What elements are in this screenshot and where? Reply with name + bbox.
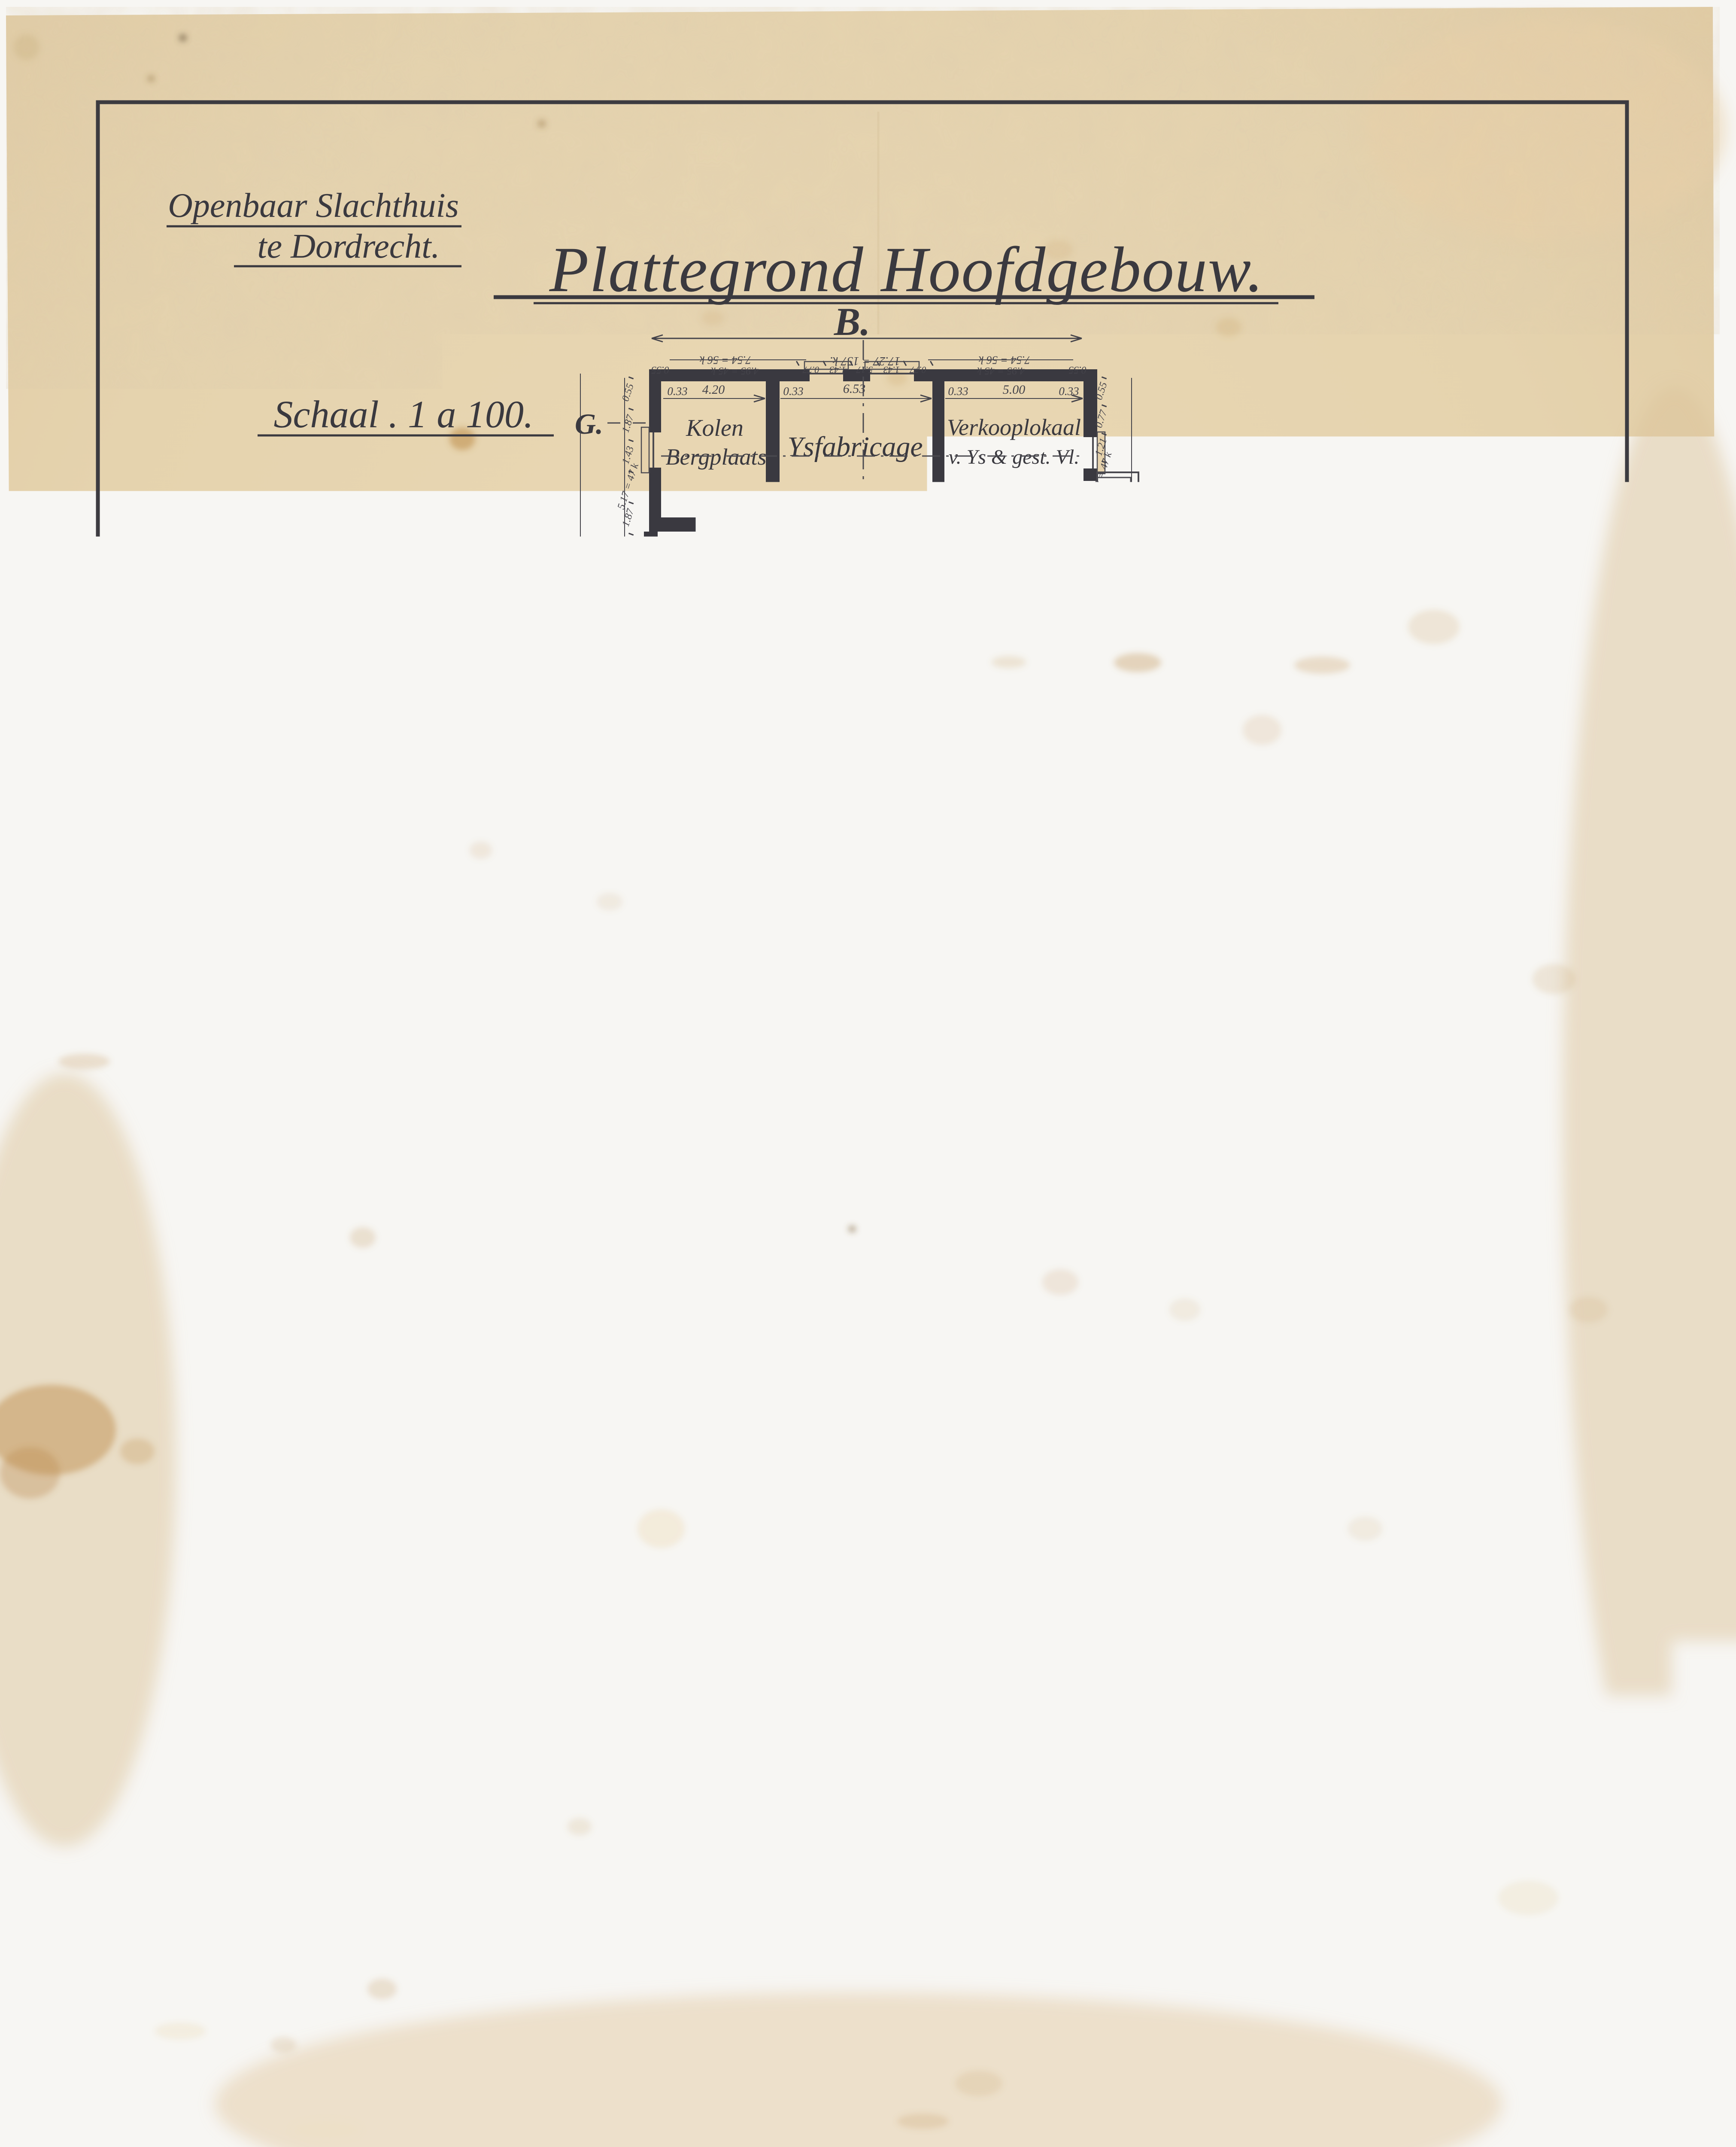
svg-text:v. Ys & gest. Vl.: v. Ys & gest. Vl. <box>949 446 1079 468</box>
svg-text:4.51 = 41 k.: 4.51 = 41 k. <box>552 1939 603 1950</box>
svg-text:Openbaar Slachthuis: Openbaar Slachthuis <box>168 187 459 225</box>
svg-text:Waschkamer.: Waschkamer. <box>1121 873 1143 974</box>
svg-text:4.57 = 41 k: 4.57 = 41 k <box>548 1015 594 1025</box>
svg-text:1.98: 1.98 <box>476 1925 493 1935</box>
svg-text:19.25 = 175 k.: 19.25 = 175 k. <box>1110 609 1123 679</box>
svg-text:0.33: 0.33 <box>668 972 688 985</box>
svg-text:Verbindings gang.: Verbindings gang. <box>734 1092 978 1130</box>
svg-text:5.00: 5.00 <box>1003 383 1026 397</box>
svg-text:1.43: 1.43 <box>829 365 846 375</box>
svg-text:0.55: 0.55 <box>432 1028 448 1038</box>
svg-text:1.54: 1.54 <box>350 1028 366 1038</box>
svg-text:0.22: 0.22 <box>1142 1025 1160 1037</box>
svg-text:1.43: 1.43 <box>863 1884 880 1895</box>
svg-text:4.20: 4.20 <box>702 383 725 397</box>
svg-text:G.: G. <box>844 1925 880 1967</box>
svg-text:Bergplaats: Bergplaats <box>666 444 767 470</box>
svg-text:0.07: 0.07 <box>1026 1532 1043 1543</box>
svg-text:0.66: 0.66 <box>1153 834 1170 845</box>
svg-text:0.77: 0.77 <box>802 365 819 375</box>
svg-text:1.65: 1.65 <box>827 1884 844 1895</box>
svg-text:1.98: 1.98 <box>486 1028 502 1038</box>
svg-text:Ysfabricage: Ysfabricage <box>787 431 923 462</box>
svg-text:4.51 = 41 k.: 4.51 = 41 k. <box>364 1939 414 1950</box>
svg-text:Koelhuis.: Koelhuis. <box>808 1603 913 1633</box>
svg-text:0.33: 0.33 <box>1393 1510 1413 1523</box>
svg-text:4.57 = 41 k: 4.57 = 41 k <box>372 1015 418 1025</box>
svg-text:13.20: 13.20 <box>459 1516 490 1532</box>
svg-text:14.08 . 128 k.: 14.08 . 128 k. <box>1223 1956 1288 1970</box>
svg-text:1.98: 1.98 <box>1247 1925 1264 1935</box>
svg-text:34.65 = 315 k: 34.65 = 315 k <box>241 1432 255 1505</box>
svg-text:H.: H. <box>1124 554 1159 592</box>
svg-text:1.87: 1.87 <box>753 1884 771 1895</box>
svg-text:0.55: 0.55 <box>651 364 669 375</box>
svg-text:0.33: 0.33 <box>667 385 687 398</box>
svg-text:0.11: 0.11 <box>661 1911 674 1919</box>
svg-text:0.07: 0.07 <box>699 1521 716 1532</box>
svg-text:0.33: 0.33 <box>317 1509 337 1522</box>
svg-text:43.45: 43.45 <box>872 1126 901 1140</box>
svg-text:Slachthal Groot en Klein Vee.: Slachthal Groot en Klein Vee. <box>1211 1330 1248 1727</box>
svg-text:Kolen: Kolen <box>686 415 744 441</box>
svg-text:0.33: 0.33 <box>948 385 968 398</box>
svg-text:1.43: 1.43 <box>633 1925 650 1935</box>
svg-text:0.55: 0.55 <box>323 1028 339 1038</box>
svg-text:2.06 . 26 k: 2.06 . 26 k <box>1236 1937 1280 1949</box>
svg-text:0.55: 0.55 <box>1185 834 1202 845</box>
svg-text:4.95 = 45 k: 4.95 = 45 k <box>1337 1012 1384 1023</box>
svg-text:0.55: 0.55 <box>1395 1028 1411 1038</box>
svg-text:1.43: 1.43 <box>595 1028 611 1038</box>
svg-text:4.07 = 37 k: 4.07 = 37 k <box>1223 822 1267 833</box>
svg-text:0.55: 0.55 <box>790 1884 807 1895</box>
svg-text:34.65 = 315 k: 34.65 = 315 k <box>1467 1432 1481 1505</box>
svg-text:0.11: 0.11 <box>1026 1521 1042 1532</box>
svg-text:5.00: 5.00 <box>745 1101 759 1122</box>
svg-text:0.33: 0.33 <box>1166 983 1177 1001</box>
svg-text:G.: G. <box>575 408 603 440</box>
svg-text:9.16: 9.16 <box>945 662 969 677</box>
svg-text:1.43: 1.43 <box>1402 1925 1419 1935</box>
svg-text:0.22: 0.22 <box>963 1026 980 1037</box>
svg-text:4.73 . 43 k: 4.73 . 43 k <box>848 1898 895 1911</box>
svg-text:0.22: 0.22 <box>1175 873 1186 891</box>
svg-text:1.43: 1.43 <box>319 1925 335 1935</box>
svg-text:4.95 = 45 k: 4.95 = 45 k <box>711 365 759 376</box>
svg-text:0.55: 0.55 <box>1068 364 1087 375</box>
svg-text:Schoorsteen.: Schoorsteen. <box>153 734 272 760</box>
svg-text:1.54: 1.54 <box>404 1028 420 1038</box>
svg-text:13.20: 13.20 <box>1265 1514 1296 1530</box>
svg-text:0.33: 0.33 <box>667 656 687 669</box>
svg-text:Voorkoelhuis.: Voorkoelhuis. <box>803 1286 953 1317</box>
svg-text:0.44: 0.44 <box>459 1028 475 1038</box>
svg-text:6.53: 6.53 <box>843 382 866 396</box>
svg-text:15.67: 15.67 <box>859 1502 893 1518</box>
svg-text:C.: C. <box>240 1545 264 1574</box>
svg-text:2C: 2C <box>1171 480 1203 509</box>
svg-text:0.44: 0.44 <box>513 1028 529 1038</box>
svg-text:0.33: 0.33 <box>958 983 978 995</box>
svg-text:1.43: 1.43 <box>1170 1925 1187 1935</box>
svg-text:25.11: 25.11 <box>573 896 587 924</box>
svg-text:1.43: 1.43 <box>1249 834 1266 845</box>
svg-text:Kleedkamer.: Kleedkamer. <box>1172 933 1296 961</box>
svg-text:0.33: 0.33 <box>1059 385 1079 398</box>
svg-text:0.22: 0.22 <box>1279 1023 1297 1034</box>
svg-text:4.51 = 41 k.: 4.51 = 41 k. <box>1134 1939 1184 1950</box>
svg-text:0.07: 0.07 <box>682 1402 699 1412</box>
svg-text:5.17 = 47 k: 5.17 = 47 k <box>974 1898 1026 1911</box>
svg-text:44.33 . 403 k.: 44.33 . 403 k. <box>835 1963 910 1978</box>
svg-text:5.00: 5.00 <box>1376 1089 1390 1109</box>
svg-text:0.66: 0.66 <box>1217 834 1234 845</box>
svg-text:B.: B. <box>834 300 870 344</box>
svg-text:2.97: 2.97 <box>1106 975 1131 991</box>
svg-text:5.17 = 47 k: 5.17 = 47 k <box>717 1898 769 1911</box>
svg-text:2.86 .26 k: 2.86 .26 k <box>455 1012 494 1023</box>
svg-text:5.17: 5.17 <box>856 365 873 375</box>
svg-text:1.43: 1.43 <box>1315 1028 1331 1038</box>
svg-text:te Dordrecht.: te Dordrecht. <box>257 228 440 265</box>
svg-text:10.80: 10.80 <box>778 973 811 989</box>
svg-text:1.54: 1.54 <box>622 1028 638 1038</box>
svg-text:1.65: 1.65 <box>1281 834 1297 845</box>
svg-text:0.11: 0.11 <box>700 1532 716 1543</box>
svg-text:1.87: 1.87 <box>680 1884 697 1895</box>
svg-text:0.11: 0.11 <box>1071 1911 1084 1919</box>
svg-text:3.52 . 32 k: 3.52 . 32 k <box>1135 822 1175 833</box>
svg-text:1.81: 1.81 <box>1132 961 1152 974</box>
svg-text:6.90: 6.90 <box>735 657 759 672</box>
svg-text:0.33: 0.33 <box>1334 1146 1355 1159</box>
svg-text:Verkooplokaal: Verkooplokaal <box>947 414 1081 440</box>
svg-text:Schaal . 1 a 100.: Schaal . 1 a 100. <box>274 393 534 436</box>
svg-text:1.62: 1.62 <box>1034 987 1052 998</box>
svg-text:1.87: 1.87 <box>1047 1884 1064 1895</box>
svg-text:0.33: 0.33 <box>1037 676 1057 689</box>
svg-text:0.55: 0.55 <box>476 767 494 778</box>
svg-text:0.55: 0.55 <box>303 1934 317 1943</box>
svg-text:0.55: 0.55 <box>937 1884 953 1895</box>
svg-text:1.43: 1.43 <box>716 1884 733 1895</box>
svg-text:Badkamer: Badkamer <box>1089 863 1105 920</box>
svg-text:16.17 . 147 k.: 16.17 . 147 k. <box>836 1913 911 1928</box>
svg-text:1.43: 1.43 <box>397 1925 414 1935</box>
svg-text:0.55: 0.55 <box>476 717 494 728</box>
svg-text:4.51 = 41 k: 4.51 = 41 k <box>1329 1939 1376 1950</box>
svg-text:D.: D. <box>1481 1542 1506 1571</box>
svg-text:Plattegrond Hoofdgebouw.: Plattegrond Hoofdgebouw. <box>549 234 1264 305</box>
svg-text:M.: M. <box>990 728 1023 763</box>
svg-text:1.43: 1.43 <box>1093 1925 1110 1935</box>
svg-text:1.43: 1.43 <box>883 365 900 375</box>
svg-text:H.: H. <box>565 557 601 595</box>
svg-text:4.95 = 45 k: 4.95 = 45 k <box>977 365 1025 376</box>
svg-text:1.43: 1.43 <box>1325 1925 1341 1935</box>
svg-text:0.33: 0.33 <box>728 767 741 787</box>
svg-text:0.77: 0.77 <box>909 365 926 375</box>
svg-text:2.64 . 24 k: 2.64 . 24 k <box>579 725 592 772</box>
svg-text:1.54: 1.54 <box>568 1028 583 1038</box>
svg-text:1.43: 1.43 <box>1369 1028 1384 1038</box>
svg-text:1.43: 1.43 <box>378 1028 394 1038</box>
svg-text:1.63: 1.63 <box>900 1884 917 1895</box>
svg-text:1.43: 1.43 <box>1341 1028 1357 1038</box>
svg-text:F.: F. <box>1205 775 1231 811</box>
svg-text:10.01: 10.01 <box>737 722 751 749</box>
svg-text:1.87: 1.87 <box>973 1884 990 1895</box>
svg-text:0,33: 0,33 <box>819 631 838 643</box>
svg-text:0.33: 0.33 <box>1390 1116 1410 1128</box>
svg-text:0.33: 0.33 <box>734 1019 745 1037</box>
svg-text:Varkens Slachthal.: Varkens Slachthal. <box>442 1333 492 1677</box>
svg-text:4.62: 4.62 <box>1035 943 1058 957</box>
svg-text:Darmwasscherij.: Darmwasscherij. <box>695 891 896 923</box>
svg-text:7.37 = 67 k: 7.37 = 67 k <box>1342 930 1355 982</box>
svg-text:1.21: 1.21 <box>1122 834 1138 845</box>
svg-text:5.28: 5.28 <box>1219 1006 1243 1022</box>
svg-text:2.06 . 26 k.: 2.06 . 26 k. <box>461 1937 507 1949</box>
svg-text:1.43: 1.43 <box>555 1925 571 1935</box>
svg-text:0.22: 0.22 <box>682 1390 699 1401</box>
svg-text:10.01: 10.01 <box>740 900 753 928</box>
svg-text:1.43: 1.43 <box>1010 1884 1027 1895</box>
svg-text:0.55: 0.55 <box>541 1028 557 1038</box>
svg-text:14.08 . 128 k.: 14.08 . 128 k. <box>448 1956 513 1970</box>
svg-text:0,55: 0,55 <box>878 689 898 702</box>
svg-text:0.33: 0.33 <box>783 385 803 398</box>
